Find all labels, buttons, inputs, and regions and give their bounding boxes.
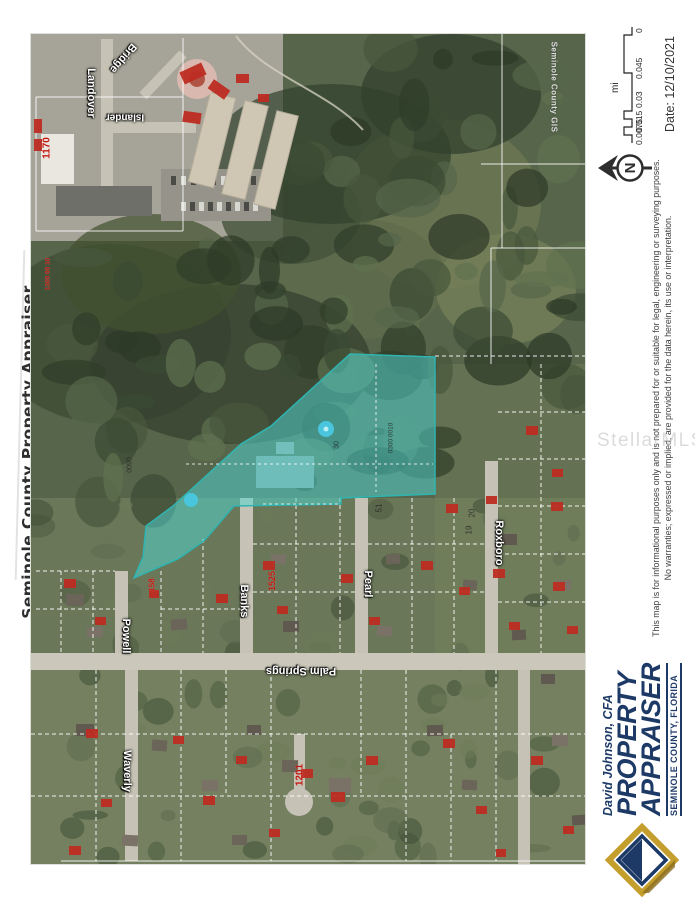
parcel-number: 1170 xyxy=(42,137,53,159)
north-label: N xyxy=(622,163,639,174)
street-label-palm-springs: Palm Springs xyxy=(266,665,336,677)
street-label-pearl: Pearl xyxy=(362,571,374,598)
street-label-powell: Powell xyxy=(120,619,132,654)
lot-number: 20 xyxy=(468,509,477,518)
map-credit: Seminole County GIS xyxy=(550,42,559,133)
scale-tick: 0 xyxy=(634,28,644,33)
scanned-map-page: { "page": { "vertical_title": "Seminole … xyxy=(0,0,695,900)
logo-subtitle: SEMINOLE COUNTY, FLORIDA xyxy=(666,663,682,816)
scale-unit-label: mi xyxy=(610,82,621,93)
map-label-layer: LandoverBridgeIslanderPowellBanksPearlRo… xyxy=(31,34,585,864)
lot-number: 30 xyxy=(334,441,341,449)
street-label-roxboro: Roxboro xyxy=(493,520,505,565)
aerial-parcel-map: LandoverBridgeIslanderPowellBanksPearlRo… xyxy=(30,33,586,865)
street-label-waverly: Waverly xyxy=(121,750,133,792)
logo-text-block: David Johnson, CFA PROPERTY APPRAISER SE… xyxy=(601,663,683,816)
map-date: Date: 12/10/2021 xyxy=(663,19,683,149)
street-label-landover: Landover xyxy=(85,68,97,118)
street-label-islander: Islander xyxy=(106,112,144,123)
lot-number: 19 xyxy=(465,526,474,535)
stellar-mls-watermark: StellarMLS xyxy=(597,430,695,452)
lot-number: 0090 xyxy=(127,457,134,473)
north-arrow: N xyxy=(595,140,657,196)
appraiser-logo-icon xyxy=(605,823,679,897)
parcel-number: 1525 xyxy=(267,571,277,591)
parcel-number: 1201 xyxy=(295,764,306,786)
scale-bar-steps xyxy=(624,27,632,143)
scale-tick: 0.015 xyxy=(634,111,644,132)
disclaimer-line1: This map is for informational purposes o… xyxy=(650,138,662,658)
logo-title-line2: APPRAISER xyxy=(639,663,663,816)
street-label-banks: Banks xyxy=(238,584,250,617)
scale-tick: 0.045 xyxy=(634,58,644,79)
scale-bar: mi 0.00750.0150.030.0450 xyxy=(614,15,650,145)
street-label-bridge: Bridge xyxy=(107,41,139,75)
parcel-number: 1300 00 10 xyxy=(45,258,52,291)
parcel-number: 158 xyxy=(148,578,157,591)
scale-bar-line xyxy=(622,23,634,145)
scale-tick-labels: 0.00750.0150.030.0450 xyxy=(634,15,646,145)
lot-number: 51 xyxy=(375,504,384,513)
map-disclaimer: This map is for informational purposes o… xyxy=(650,138,676,658)
lot-number: 0300 0010 xyxy=(388,423,395,454)
scale-tick: 0.03 xyxy=(634,91,644,108)
property-appraiser-logo: David Johnson, CFA PROPERTY APPRAISER SE… xyxy=(589,662,694,897)
disclaimer-line2: No warranties; expressed or implied, are… xyxy=(662,138,674,658)
